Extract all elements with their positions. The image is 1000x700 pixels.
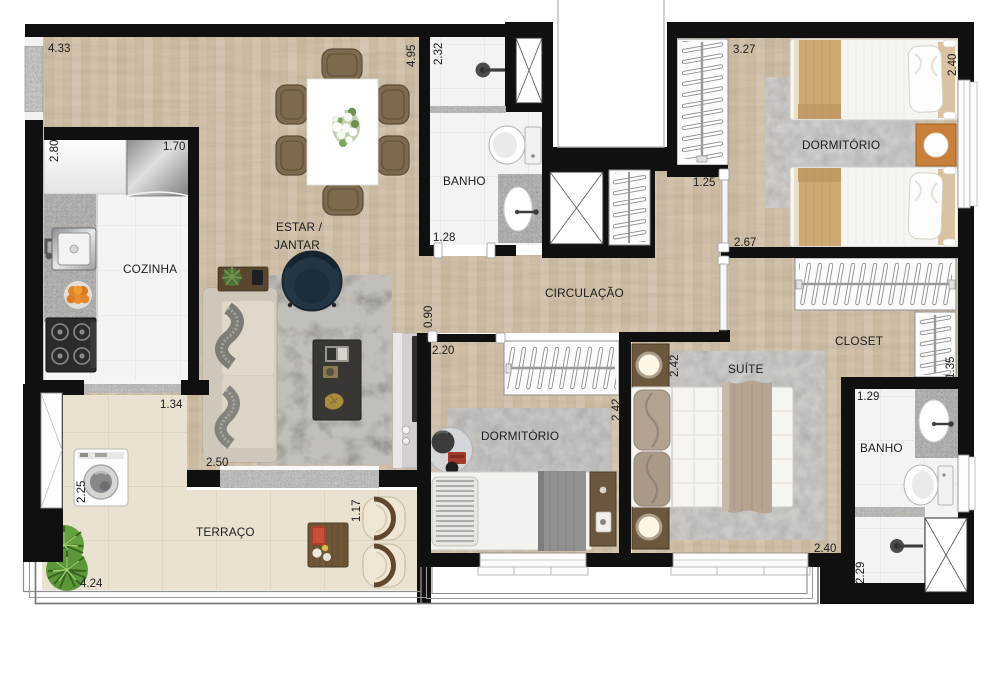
svg-text:DORMITÓRIO: DORMITÓRIO (802, 138, 880, 152)
svg-text:JANTAR: JANTAR (274, 238, 320, 252)
svg-text:CLOSET: CLOSET (835, 334, 883, 348)
svg-text:4.95: 4.95 (406, 45, 418, 67)
svg-text:1.70: 1.70 (163, 141, 185, 153)
svg-text:1.28: 1.28 (433, 232, 455, 244)
svg-text:1.34: 1.34 (160, 399, 183, 411)
svg-text:TERRAÇO: TERRAÇO (196, 525, 255, 539)
svg-text:2.32: 2.32 (433, 43, 445, 65)
svg-text:0.90: 0.90 (423, 306, 435, 328)
svg-text:2.80: 2.80 (49, 140, 61, 162)
svg-text:4.33: 4.33 (48, 43, 70, 55)
svg-text:2.67: 2.67 (734, 237, 756, 249)
svg-text:2.42: 2.42 (669, 355, 681, 377)
svg-text:SUÍTE: SUÍTE (728, 362, 764, 376)
svg-text:1.35: 1.35 (945, 357, 957, 379)
svg-text:4.24: 4.24 (80, 578, 103, 590)
svg-text:2.50: 2.50 (206, 457, 228, 469)
svg-text:COZINHA: COZINHA (123, 262, 177, 276)
svg-text:DORMITÓRIO: DORMITÓRIO (481, 429, 559, 443)
svg-text:BANHO: BANHO (443, 174, 486, 188)
svg-text:2.40: 2.40 (814, 543, 836, 555)
svg-text:2.42: 2.42 (611, 399, 623, 421)
svg-text:CIRCULAÇÃO: CIRCULAÇÃO (545, 286, 624, 300)
svg-text:3.27: 3.27 (733, 44, 755, 56)
svg-text:2.40: 2.40 (947, 54, 959, 76)
svg-text:2.29: 2.29 (855, 562, 867, 584)
svg-text:BANHO: BANHO (860, 441, 903, 455)
svg-text:1.25: 1.25 (693, 177, 715, 189)
svg-text:ESTAR /: ESTAR / (276, 220, 323, 234)
svg-text:1.17: 1.17 (351, 500, 363, 522)
svg-text:2.20: 2.20 (432, 345, 454, 357)
svg-text:1.29: 1.29 (857, 391, 879, 403)
svg-text:2.25: 2.25 (76, 481, 88, 503)
